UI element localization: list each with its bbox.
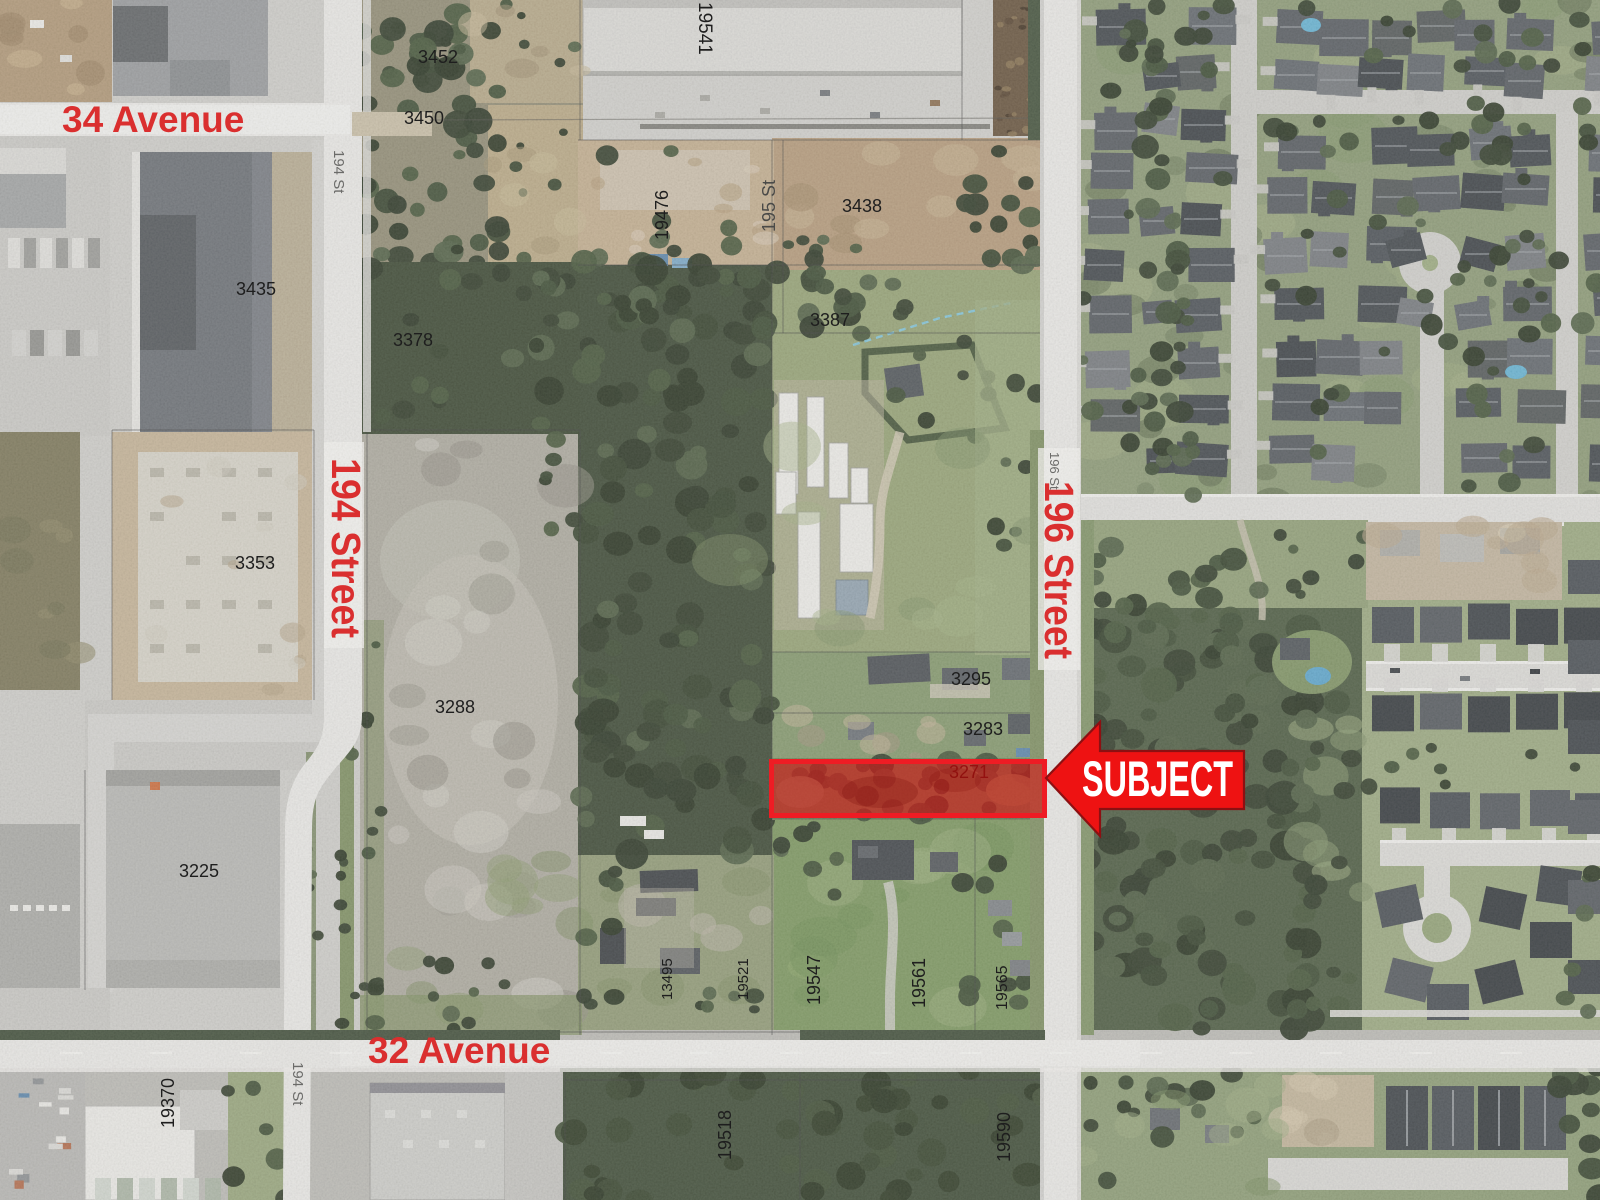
svg-text:196 Street: 196 Street [1036, 481, 1082, 659]
svg-text:3438: 3438 [842, 196, 882, 216]
svg-text:SUBJECT: SUBJECT [1082, 751, 1233, 807]
svg-text:3450: 3450 [404, 108, 444, 128]
svg-text:3435: 3435 [236, 279, 276, 299]
svg-text:19541: 19541 [694, 2, 715, 55]
svg-text:19370: 19370 [158, 1078, 178, 1128]
svg-text:3387: 3387 [810, 310, 850, 330]
svg-text:3225: 3225 [179, 861, 219, 881]
svg-text:13495: 13495 [659, 958, 676, 1000]
svg-text:3353: 3353 [235, 553, 275, 573]
svg-text:19476: 19476 [652, 190, 672, 240]
svg-text:19590: 19590 [994, 1112, 1014, 1162]
svg-text:19518: 19518 [715, 1110, 735, 1160]
svg-text:34 Avenue: 34 Avenue [62, 99, 244, 140]
svg-text:19547: 19547 [804, 955, 824, 1005]
svg-text:3452: 3452 [418, 47, 458, 67]
svg-text:3283: 3283 [963, 719, 1003, 739]
svg-text:194 St: 194 St [289, 1062, 306, 1106]
svg-text:195 St: 195 St [759, 180, 779, 232]
svg-text:32 Avenue: 32 Avenue [368, 1030, 550, 1071]
svg-text:194 St: 194 St [330, 150, 347, 194]
svg-text:3378: 3378 [393, 330, 433, 350]
svg-text:194 Street: 194 Street [323, 458, 369, 638]
svg-text:19565: 19565 [994, 965, 1011, 1010]
svg-text:19521: 19521 [735, 958, 752, 1000]
svg-text:3295: 3295 [951, 669, 991, 689]
svg-text:19561: 19561 [909, 958, 929, 1008]
svg-text:3288: 3288 [435, 697, 475, 717]
